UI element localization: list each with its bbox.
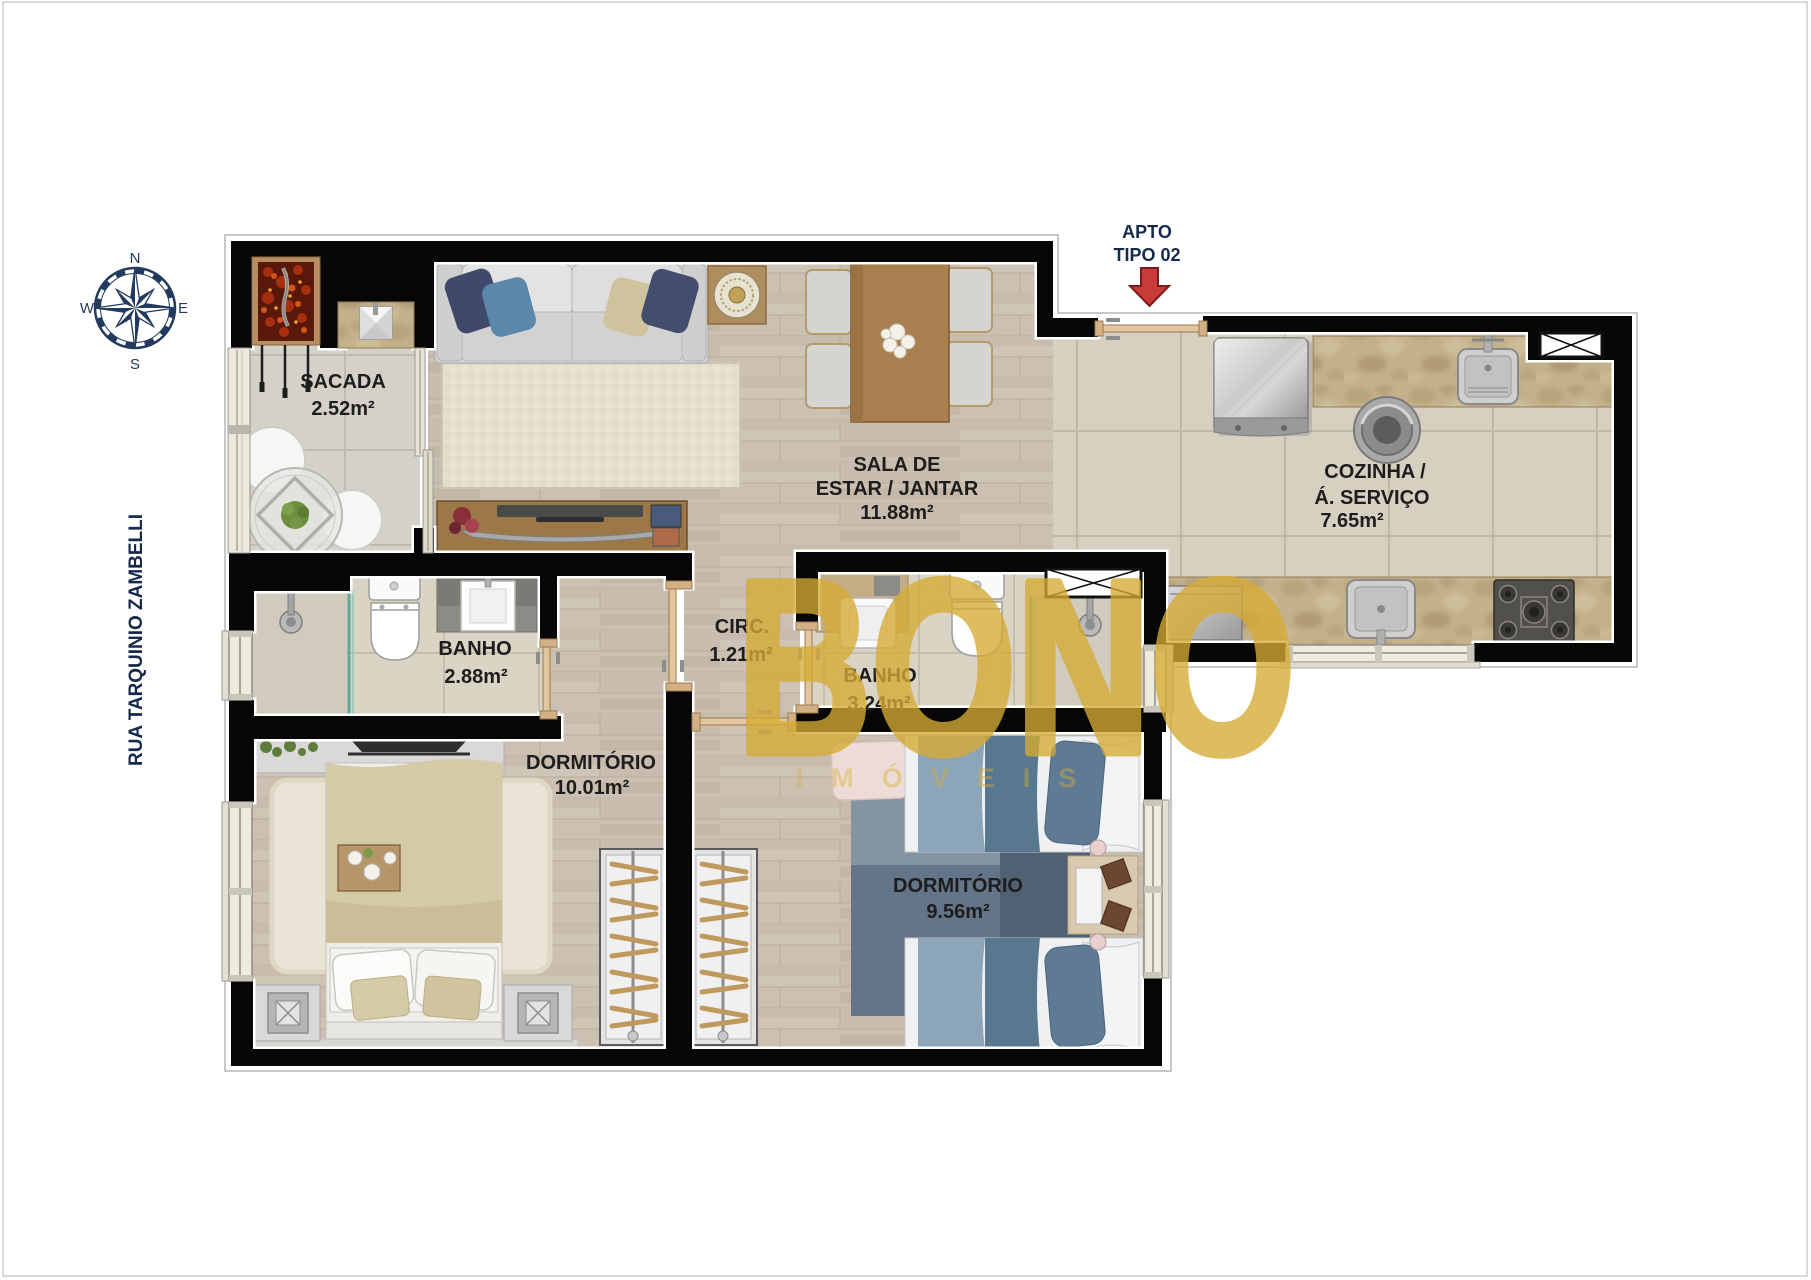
svg-text:COZINHA /: COZINHA / (1324, 461, 1426, 483)
svg-text:ESTAR / JANTAR: ESTAR / JANTAR (816, 478, 979, 500)
svg-text:10.01m²: 10.01m² (555, 777, 630, 799)
svg-text:N: N (130, 250, 141, 267)
svg-text:9.56m²: 9.56m² (926, 901, 990, 923)
svg-text:DORMITÓRIO: DORMITÓRIO (893, 873, 1023, 897)
svg-text:SALA DE: SALA DE (853, 454, 940, 476)
svg-text:TIPO 02: TIPO 02 (1113, 245, 1180, 265)
svg-text:E: E (178, 300, 188, 317)
svg-text:RUA TARQUINIO ZAMBELLI: RUA TARQUINIO ZAMBELLI (126, 514, 147, 766)
svg-text:2.52m²: 2.52m² (311, 398, 375, 420)
svg-text:Á. SERVIÇO: Á. SERVIÇO (1314, 486, 1429, 509)
svg-text:DORMITÓRIO: DORMITÓRIO (526, 750, 656, 774)
svg-text:APTO: APTO (1122, 222, 1172, 242)
svg-text:11.88m²: 11.88m² (860, 502, 934, 524)
svg-text:SACADA: SACADA (300, 371, 386, 393)
svg-text:S: S (130, 356, 140, 373)
svg-text:2.88m²: 2.88m² (444, 666, 508, 688)
svg-text:IMÓVEIS: IMÓVEIS (796, 762, 1105, 793)
svg-text:BANHO: BANHO (438, 638, 511, 660)
svg-text:7.65m²: 7.65m² (1320, 510, 1384, 532)
svg-text:W: W (80, 300, 95, 317)
